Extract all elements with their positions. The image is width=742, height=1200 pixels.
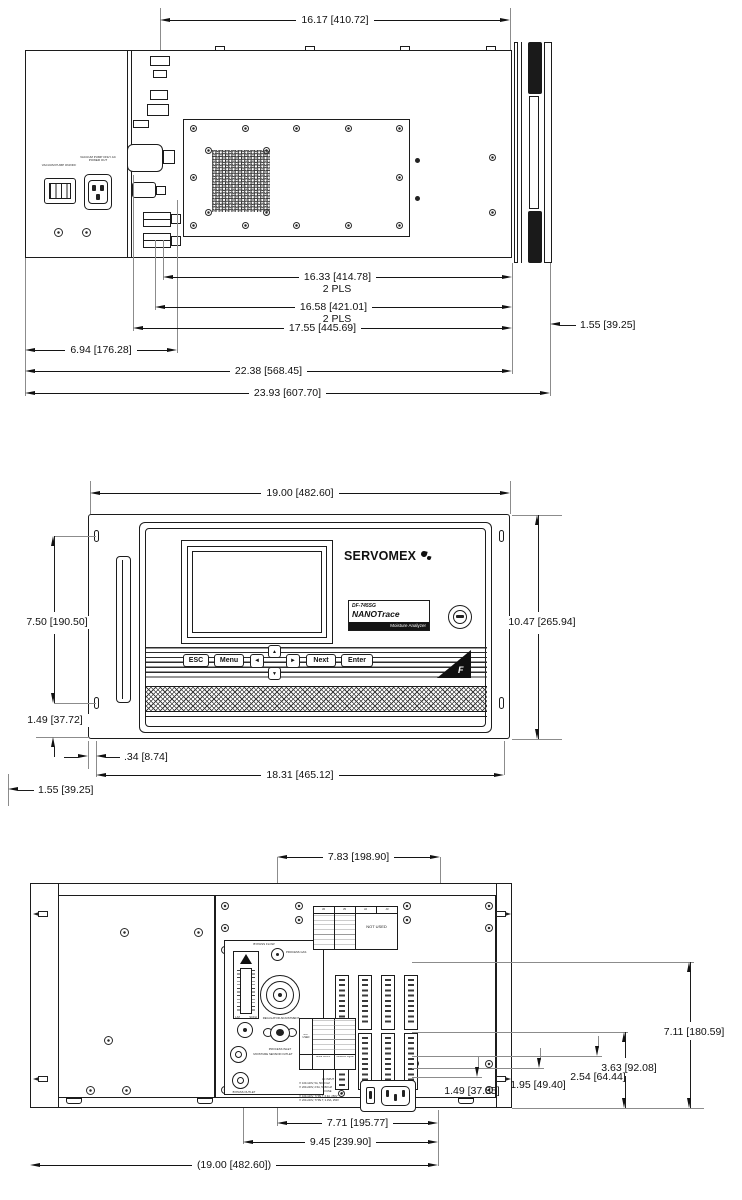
ear-slot [496, 1076, 506, 1082]
handle-plate [529, 96, 539, 209]
arrow-up-button[interactable]: ▲ [268, 645, 281, 658]
dim-slots: 7.50 [190.50] [10, 616, 104, 629]
dim-text: 7.83 [198.90] [323, 852, 394, 863]
dim-top-offset: 7.83 [198.90] [277, 851, 440, 863]
foot [458, 1098, 474, 1104]
side-trim-strip [116, 556, 131, 703]
outlet-label: VACUUM PUMP ONLY AC POWER OUT [78, 156, 118, 163]
dim-slot-edge: 1.49 [37.72] [12, 714, 98, 727]
fitting [150, 56, 170, 66]
hex-line [143, 240, 171, 241]
ear-slot [496, 911, 506, 917]
mounting-slot [499, 530, 504, 542]
flow-scale-ticks [237, 970, 240, 1012]
dim-text: 17.55 [445.69] [284, 323, 361, 334]
extension-line [54, 536, 96, 537]
reference-line [512, 1108, 704, 1109]
dim-text: 16.17 [410.72] [296, 15, 373, 26]
dim-text: 7.71 [195.77] [322, 1118, 393, 1129]
screw [104, 1036, 113, 1045]
screw [86, 1086, 95, 1095]
product-model: DF-745SG [349, 601, 429, 609]
dim-ear: 1.55 [39.25] [38, 785, 118, 796]
dim-text: 22.38 [568.45] [230, 366, 307, 377]
bypass-outlet-label: BYPASS OUTLET [222, 1091, 266, 1094]
screw [403, 916, 411, 924]
mesh-grille [146, 686, 487, 712]
screw [345, 125, 352, 132]
extension-line [155, 240, 156, 310]
extension-line [550, 263, 551, 396]
extension-line [133, 175, 134, 331]
dim-text: 6.94 [176.28] [65, 345, 136, 356]
product-label: DF-745SG NANOTrace Moisture Analyzer [348, 600, 430, 631]
hex-line [143, 219, 171, 220]
process-gas-label: PROCESS GAS [286, 951, 322, 954]
screw [221, 924, 229, 932]
screw [190, 174, 197, 181]
dim-line [538, 515, 539, 612]
dim-line [560, 325, 576, 326]
bypass-flow-label: BYPASS FLOW [232, 943, 296, 946]
hinge-tab [305, 46, 315, 51]
screw [489, 154, 496, 161]
pump-switch-rockers [49, 183, 71, 199]
screw [194, 928, 203, 937]
arrow-left-icon: ◄ [254, 658, 260, 664]
flow-unit-lm: L/M [231, 1016, 244, 1019]
product-type: Moisture Analyzer [349, 622, 429, 630]
dim-23-93: 23.93 [607.70] [25, 387, 550, 399]
process-inlet-label: PROCESS INLET [256, 1048, 304, 1051]
screw [345, 222, 352, 229]
valve-stem [163, 150, 175, 164]
screw [190, 222, 197, 229]
terminal-pins [385, 979, 391, 1026]
reference-line [412, 962, 694, 963]
terminal-pins [362, 1037, 368, 1086]
dim-h4: 1.95 [49.40] [506, 1080, 570, 1091]
switch-label: VACUUM PUMP ON/OFF [36, 164, 82, 167]
product-series: NANOTrace [349, 609, 429, 619]
not-used-label: NOT USED [300, 1034, 312, 1040]
screw [489, 209, 496, 216]
dim-w3: (19.00 [482.60]) [30, 1159, 438, 1171]
header-j: J3 [376, 908, 398, 911]
dim-overall-top: 16.17 [410.72] [160, 14, 510, 26]
fitting [133, 120, 149, 128]
flowmeter-tube [240, 968, 252, 1014]
reference-line [412, 1077, 482, 1078]
arrow-right-icon: ► [290, 658, 296, 664]
screw [122, 1086, 131, 1095]
screw [120, 928, 129, 937]
not-used-label: NOT USED [356, 925, 397, 930]
dim-lip: .34 [8.74] [124, 752, 194, 763]
screw [396, 125, 403, 132]
dim-w1: 7.71 [195.77] [277, 1117, 438, 1129]
header-j: J2 [355, 908, 376, 911]
extension-line [438, 1110, 439, 1166]
rack-handle [528, 211, 542, 263]
dim-h1: 7.11 [180.59] [651, 1026, 737, 1039]
screw [396, 222, 403, 229]
outline-drawing: 16.17 [410.72] VACUUM PUMP ON/OFF VACUUM… [0, 0, 742, 1200]
table-rows [313, 1020, 355, 1052]
screw [485, 1060, 493, 1068]
extension-line [54, 703, 96, 704]
arrow-down-icon: ▼ [272, 671, 277, 677]
fitting [171, 236, 181, 246]
dim-w2: 9.45 [239.90] [243, 1136, 438, 1148]
arrow-down-button[interactable]: ▼ [268, 667, 281, 680]
arrow-left-button[interactable]: ◄ [250, 654, 264, 668]
screw [295, 916, 303, 924]
hinge-tab [215, 46, 225, 51]
terminal-pins [408, 979, 414, 1026]
bypass-outlet-port-inner [237, 1077, 244, 1084]
dim-text: 9.45 [239.90] [305, 1137, 376, 1148]
keylock-slot [456, 615, 464, 618]
signal-label: Moisture Signal [335, 1056, 355, 1059]
dim-text: 23.93 [607.70] [249, 388, 326, 399]
extension-line [36, 737, 88, 738]
dim-h5: 1.49 [37.85] [440, 1086, 504, 1097]
foot [66, 1098, 82, 1104]
sensor-outlet-port-inner [235, 1051, 242, 1058]
reference-line [412, 1032, 628, 1033]
screw [403, 902, 411, 910]
header-j: J6 [313, 908, 334, 911]
ac-line: ☐ 200-240V, TYPE T, 3.15A, 250V [299, 1099, 357, 1103]
screw [295, 902, 303, 910]
screw [190, 125, 197, 132]
screw [485, 924, 493, 932]
front-panel-edge-line [521, 42, 522, 263]
terminal-pins [385, 1037, 391, 1086]
dim-16-33: 16.33 [414.78] [163, 271, 512, 283]
dim-line [106, 757, 120, 758]
fitting [171, 214, 181, 224]
screw [396, 174, 403, 181]
blank-panel [58, 895, 215, 1098]
screw [242, 125, 249, 132]
dim-6-94: 6.94 [176.28] [25, 344, 177, 356]
enter-button[interactable]: Enter [341, 654, 373, 667]
dim-bezel: 18.31 [465.12] [96, 769, 504, 781]
vent-grille [212, 150, 270, 212]
dim-line [18, 790, 34, 791]
screw [485, 902, 493, 910]
extension-line [88, 741, 89, 769]
enter-label: Enter [348, 657, 366, 664]
brand-text: SERVOMEX [344, 549, 428, 563]
bezel-line [146, 716, 487, 717]
dim-line [64, 757, 78, 758]
dim-line [54, 536, 55, 612]
bezel-plate-edge [544, 42, 552, 263]
knob [132, 182, 156, 198]
dim-17-55: 17.55 [445.69] [133, 322, 512, 334]
dim-1-55-top: 1.55 [39.25] [580, 320, 660, 331]
extension-line [512, 263, 513, 374]
menu-button[interactable]: Menu [214, 654, 244, 667]
table-rows [314, 915, 334, 948]
mounting-slot [499, 697, 504, 709]
screw [293, 222, 300, 229]
dim-text: 19.00 [482.60] [261, 488, 338, 499]
display-screen-inner [192, 551, 322, 633]
esc-button[interactable]: ESC [183, 654, 209, 667]
screw [293, 125, 300, 132]
extension-line [512, 739, 562, 740]
fitting [150, 90, 168, 100]
ear-slot [38, 911, 48, 917]
arrow-up-icon: ▲ [272, 649, 277, 655]
table-line [299, 1054, 356, 1055]
header-j: J5 [334, 908, 355, 911]
table-rows [335, 915, 355, 948]
foot [197, 1098, 213, 1104]
screw [415, 196, 420, 201]
extension-line [510, 8, 511, 50]
hinge-tab [486, 46, 496, 51]
screw [415, 158, 420, 163]
screw [242, 222, 249, 229]
front-panel-edge [514, 42, 518, 263]
serial-label: Serial Comm [313, 1056, 333, 1059]
iec-outlet-inner [88, 180, 108, 204]
dim-h3: 2.54 [64.44] [566, 1072, 630, 1083]
side-trim-line [122, 560, 123, 699]
dim-text: 16.58 [421.01] [295, 302, 372, 313]
dim-note: 2 PLS [297, 284, 377, 295]
screw [82, 228, 91, 237]
terminal-pins [362, 979, 368, 1026]
sensor-outlet-label: MOISTURE SENSOR OUTLET [248, 1053, 298, 1056]
valve-handle [127, 144, 163, 172]
knob-stem [156, 186, 166, 195]
flow-scale-ticks [252, 970, 255, 1012]
ac-ratings: AC INPUT ☐ 100-120V, 5A, 50/60 HZ ☐ 200-… [299, 1078, 357, 1103]
cert-triangle-icon [437, 650, 471, 678]
screw [221, 902, 229, 910]
screw [54, 228, 63, 237]
dim-width: 19.00 [482.60] [90, 487, 510, 499]
screw [205, 147, 212, 154]
dim-text: 16.33 [414.78] [299, 272, 376, 283]
dim-text: (19.00 [482.60]) [192, 1160, 276, 1171]
cert-letter: F [458, 665, 464, 675]
menu-label: Menu [220, 657, 238, 664]
dim-height: 10.47 [265.94] [496, 616, 588, 629]
rack-handle [528, 42, 542, 94]
dim-16-58: 16.58 [421.01] [155, 301, 512, 313]
warning-triangle-icon [240, 954, 252, 964]
dim-22-38: 22.38 [568.45] [25, 365, 512, 377]
dim-line [54, 747, 55, 757]
fitting [147, 104, 169, 116]
screw [205, 209, 212, 216]
terminal-pins [408, 1037, 414, 1086]
esc-label: ESC [189, 657, 203, 664]
hinge-tab [400, 46, 410, 51]
dim-line [538, 634, 539, 739]
ear-slot [38, 1076, 48, 1082]
arrow-right-button[interactable]: ► [286, 654, 300, 668]
next-label: Next [313, 657, 328, 664]
next-button[interactable]: Next [306, 654, 336, 667]
dim-text: 18.31 [465.12] [261, 770, 338, 781]
fitting [153, 70, 167, 78]
extension-line [504, 741, 505, 775]
reference-line [412, 1056, 602, 1057]
extension-line [510, 481, 511, 514]
